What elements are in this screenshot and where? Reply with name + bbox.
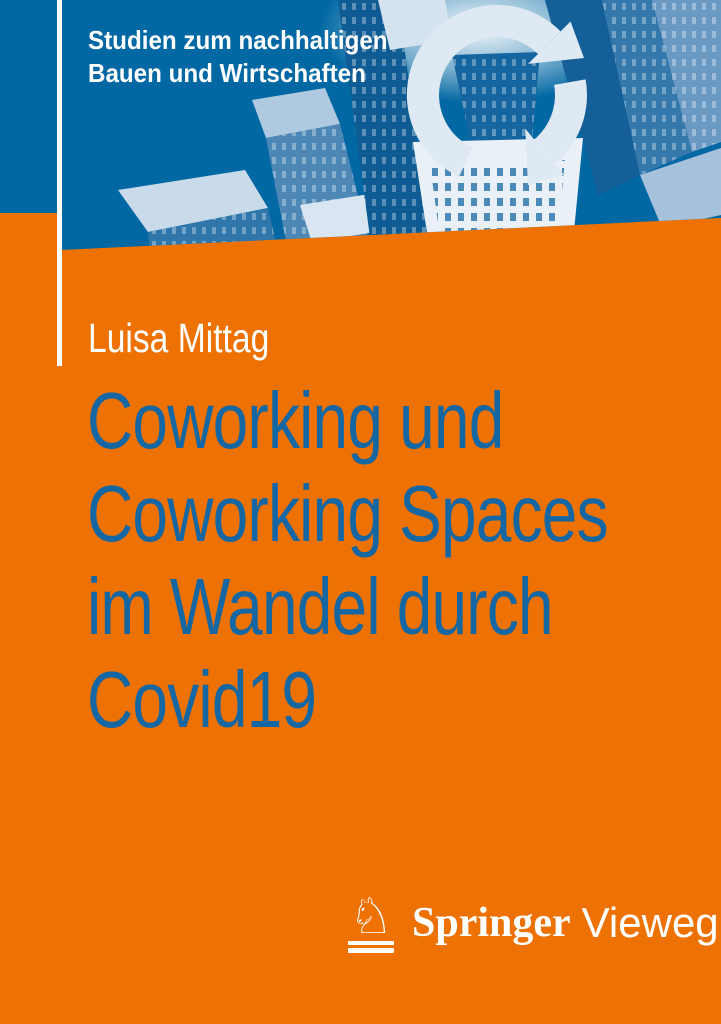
logo-bar-thick [348, 948, 394, 954]
book-title-line4: Covid19 [87, 653, 608, 746]
logo-bar-thin [348, 941, 394, 945]
publisher-name-vieweg: Vieweg [582, 899, 719, 947]
series-title-line2: Bauen und Wirtschaften [88, 57, 388, 90]
knight-glyph: ♘ [349, 893, 394, 939]
vertical-divider-line [57, 0, 62, 366]
book-title: Coworking und Coworking Spaces im Wandel… [87, 374, 608, 746]
publisher-name-springer: Springer [412, 899, 571, 947]
publisher-logo: ♘ Springer Vieweg [344, 893, 719, 953]
book-cover: Studien zum nachhaltigen Bauen und Wirts… [0, 0, 721, 1024]
series-title-line1: Studien zum nachhaltigen [88, 24, 388, 57]
springer-horse-icon: ♘ [344, 893, 398, 953]
book-title-line1: Coworking und [87, 374, 608, 467]
author-name: Luisa Mittag [88, 315, 269, 361]
book-title-line3: im Wandel durch [87, 560, 608, 653]
book-title-line2: Coworking Spaces [87, 467, 608, 560]
left-blue-strip [0, 0, 57, 213]
series-title: Studien zum nachhaltigen Bauen und Wirts… [88, 24, 388, 90]
